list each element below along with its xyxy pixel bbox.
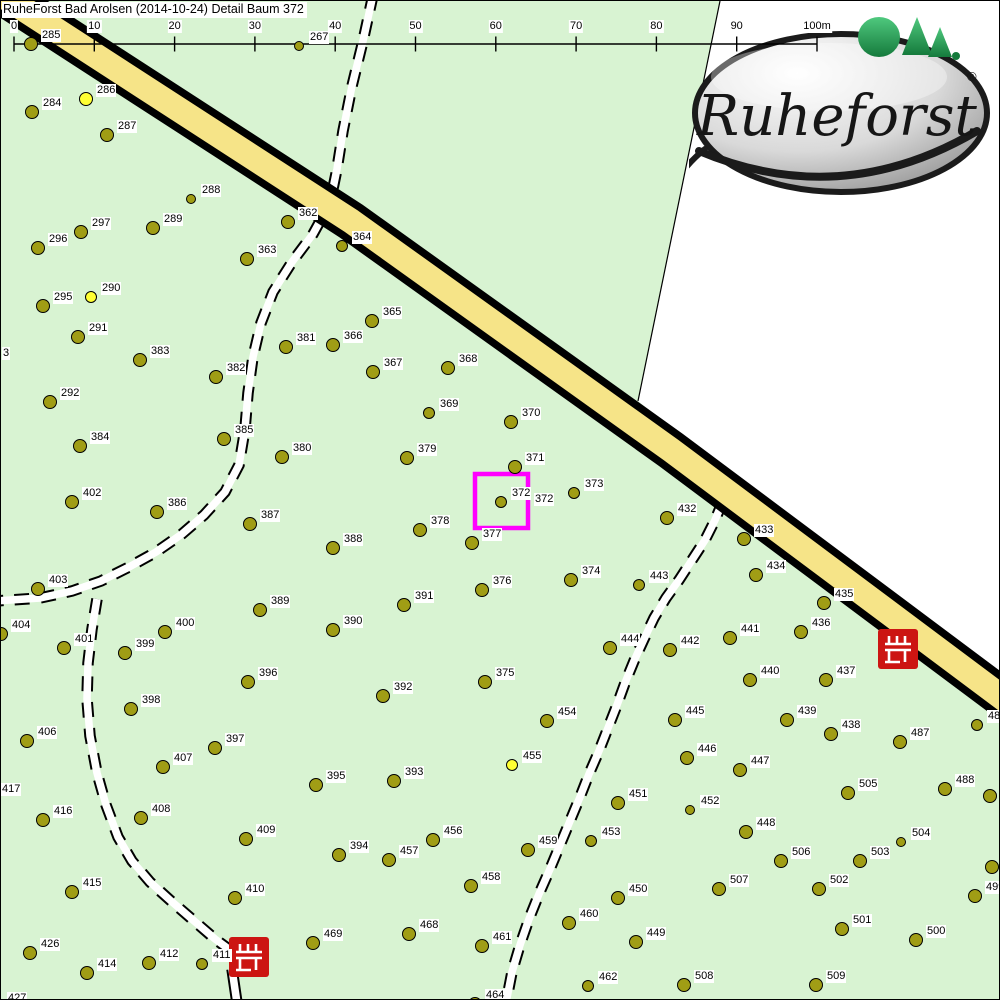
- tree-marker-285: [24, 37, 38, 51]
- tree-marker-462: [582, 980, 594, 992]
- tree-marker-438: [824, 727, 838, 741]
- scale-label: 100m: [802, 20, 832, 33]
- tree-label: 377: [482, 528, 502, 541]
- tree-marker-488: [938, 782, 952, 796]
- tree-label: 447: [750, 755, 770, 768]
- tree-marker-400: [158, 625, 172, 639]
- tree-label: 458: [481, 871, 501, 884]
- tree-label: 289: [163, 213, 183, 226]
- tree-label: 439: [797, 705, 817, 718]
- tree-label: 506: [791, 846, 811, 859]
- tree-label: 397: [225, 733, 245, 746]
- tree-label: 450: [628, 883, 648, 896]
- tree-marker-507: [712, 882, 726, 896]
- tree-marker-392: [376, 689, 390, 703]
- tree-label: 443: [649, 570, 669, 583]
- tree-marker-288: [186, 194, 196, 204]
- tree-marker-448: [739, 825, 753, 839]
- tree-marker-384: [73, 439, 87, 453]
- tree-label: 449: [646, 927, 666, 940]
- tree-label: 502: [829, 874, 849, 887]
- tree-label: 385: [234, 424, 254, 437]
- scale-label: 30: [248, 20, 262, 33]
- tree-label: 401: [74, 633, 94, 646]
- tree-label: 503: [870, 846, 890, 859]
- tree-marker-469: [306, 936, 320, 950]
- tree-label: 412: [159, 948, 179, 961]
- tree-marker-444: [603, 641, 617, 655]
- tree-label: 286: [96, 84, 116, 97]
- tree-label: 438: [841, 719, 861, 732]
- tree-label: 403: [48, 574, 68, 587]
- tree-marker-378: [413, 523, 427, 537]
- tree-marker-284: [25, 105, 39, 119]
- tree-marker-368: [441, 361, 455, 375]
- scale-label: 10: [87, 20, 101, 33]
- tree-marker-499: [968, 889, 982, 903]
- tree-marker-372: [495, 496, 507, 508]
- tree-label: 454: [557, 706, 577, 719]
- tree-marker-441: [723, 631, 737, 645]
- scale-label: 20: [167, 20, 181, 33]
- tree-marker-454: [540, 714, 554, 728]
- tree-label: 509: [826, 970, 846, 983]
- tree-label: 427: [7, 992, 27, 1000]
- tree-label: 362: [298, 207, 318, 220]
- tree-marker-290: [85, 291, 97, 303]
- tree-marker-440: [743, 673, 757, 687]
- tree-label: 384: [90, 431, 110, 444]
- tree-label: 297: [91, 217, 111, 230]
- tree-label: 504: [911, 827, 931, 840]
- tree-marker-393: [387, 774, 401, 788]
- scale-label: 80: [649, 20, 663, 33]
- tree-marker-377: [465, 536, 479, 550]
- tree-label: 410: [245, 883, 265, 896]
- tree-marker-401: [57, 641, 71, 655]
- tree-label: 417: [1, 783, 21, 796]
- tree-marker-388: [326, 541, 340, 555]
- tree-label: 441: [740, 623, 760, 636]
- tree-label: 464: [485, 989, 505, 1000]
- tree-label: 501: [852, 914, 872, 927]
- tree-label: 426: [40, 938, 60, 951]
- tree-marker: [983, 789, 997, 803]
- tree-label: 365: [382, 306, 402, 319]
- tree-label: 432: [677, 503, 697, 516]
- tree-marker-370: [504, 415, 518, 429]
- tree-label: 386: [167, 497, 187, 510]
- tree-marker-389: [253, 603, 267, 617]
- tree-label: 366: [343, 330, 363, 343]
- tree-marker-506: [774, 854, 788, 868]
- tree-label: 437: [836, 665, 856, 678]
- tree-label: 378: [430, 515, 450, 528]
- tree-marker-369: [423, 407, 435, 419]
- tree-marker-398: [124, 702, 138, 716]
- tree-marker-461: [475, 939, 489, 953]
- tree-label: 292: [60, 387, 80, 400]
- tree-label: 291: [88, 322, 108, 335]
- tree-label: 444: [620, 633, 640, 646]
- tree-label: 408: [151, 803, 171, 816]
- tree-marker-371: [508, 460, 522, 474]
- tree-label: 433: [754, 524, 774, 537]
- tree-label: 393: [404, 766, 424, 779]
- tree-marker-426: [23, 946, 37, 960]
- tree-marker-451: [611, 796, 625, 810]
- tree-label: 508: [694, 970, 714, 983]
- tree-label: 457: [399, 845, 419, 858]
- tree-marker-433: [737, 532, 751, 546]
- tree-marker-397: [208, 741, 222, 755]
- tree-marker-367: [366, 365, 380, 379]
- tree-label: 369: [439, 398, 459, 411]
- tree-marker-445: [668, 713, 682, 727]
- tree-marker-435: [817, 596, 831, 610]
- tree-marker-503: [853, 854, 867, 868]
- tree-label: 371: [525, 452, 545, 465]
- tree-marker-504: [896, 837, 906, 847]
- tree-marker-295: [36, 299, 50, 313]
- tree-marker-508: [677, 978, 691, 992]
- tree-label: 372: [534, 493, 554, 506]
- tree-marker-415: [65, 885, 79, 899]
- tree-marker-291: [71, 330, 85, 344]
- tree-marker-394: [332, 848, 346, 862]
- tree-marker-286: [79, 92, 93, 106]
- tree-marker-407: [156, 760, 170, 774]
- tree-label: 459: [538, 835, 558, 848]
- tree-marker-442: [663, 643, 677, 657]
- tree-label: 367: [383, 357, 403, 370]
- tree-label: 382: [226, 362, 246, 375]
- tree-label: 414: [97, 958, 117, 971]
- tree-label: 462: [598, 971, 618, 984]
- tree-marker-379: [400, 451, 414, 465]
- tree-marker-411: [196, 958, 208, 970]
- tree-marker-414: [80, 966, 94, 980]
- tree-marker-383: [133, 353, 147, 367]
- tree-marker-434: [749, 568, 763, 582]
- tree-label: 487: [910, 727, 930, 740]
- tree-label: 394: [349, 840, 369, 853]
- tree-marker-509: [809, 978, 823, 992]
- tree-label: 411: [212, 949, 232, 962]
- tree-marker-412: [142, 956, 156, 970]
- tree-marker-505: [841, 786, 855, 800]
- tree-marker-391: [397, 598, 411, 612]
- tree-label: 285: [41, 29, 61, 42]
- tree-marker-297: [74, 225, 88, 239]
- tree-label: 446: [697, 743, 717, 756]
- tree-label: 451: [628, 788, 648, 801]
- tree-label: 370: [521, 407, 541, 420]
- tree-label: 460: [579, 908, 599, 921]
- tree-label: 368: [458, 353, 478, 366]
- tree-label: 395: [326, 770, 346, 783]
- tree-label: 381: [296, 332, 316, 345]
- tree-label: 442: [680, 635, 700, 648]
- tree-marker-390: [326, 623, 340, 637]
- tree-label: 296: [48, 233, 68, 246]
- tree-marker-487: [893, 735, 907, 749]
- tree-label: 499: [985, 881, 1000, 894]
- tree-label: 468: [419, 919, 439, 932]
- tree-marker-439: [780, 713, 794, 727]
- scale-label: 70: [569, 20, 583, 33]
- tree-label: 456: [443, 825, 463, 838]
- tree-marker-382: [209, 370, 223, 384]
- tree-marker-408: [134, 811, 148, 825]
- tree-label: 400: [175, 617, 195, 630]
- tree-marker: [985, 860, 999, 874]
- tree-marker-380: [275, 450, 289, 464]
- tree-marker-437: [819, 673, 833, 687]
- tree-marker-406: [20, 734, 34, 748]
- tree-marker-365: [365, 314, 379, 328]
- tree-marker-502: [812, 882, 826, 896]
- tree-label: 448: [756, 817, 776, 830]
- tree-label: 461: [492, 931, 512, 944]
- tree-label: 374: [581, 565, 601, 578]
- tree-label: 288: [201, 184, 221, 197]
- tree-label: 486: [987, 710, 1000, 723]
- tree-marker-409: [239, 832, 253, 846]
- tree-marker-457: [382, 853, 396, 867]
- tree-label: 500: [926, 925, 946, 938]
- tree-label: 455: [522, 750, 542, 763]
- tree-marker-287: [100, 128, 114, 142]
- tree-label: 391: [414, 590, 434, 603]
- tree-label: 267: [309, 31, 329, 44]
- tree-label: 416: [53, 805, 73, 818]
- tree-label: 404: [11, 619, 31, 632]
- tree-label: 434: [766, 560, 786, 573]
- tree-label: 398: [141, 694, 161, 707]
- tree-label: 373: [584, 478, 604, 491]
- tree-label: 406: [37, 726, 57, 739]
- tree-label: 388: [343, 533, 363, 546]
- tree-marker-500: [909, 933, 923, 947]
- tree-label: 389: [270, 595, 290, 608]
- tree-marker-455: [506, 759, 518, 771]
- tree-label: 415: [82, 877, 102, 890]
- tree-label: 396: [258, 667, 278, 680]
- tree-label: 409: [256, 824, 276, 837]
- tree-label: 452: [700, 795, 720, 808]
- tree-marker-403: [31, 582, 45, 596]
- tree-label: 453: [601, 826, 621, 839]
- tree-marker-387: [243, 517, 257, 531]
- tree-marker-289: [146, 221, 160, 235]
- tree-marker-374: [564, 573, 578, 587]
- tree-marker-447: [733, 763, 747, 777]
- tree-marker-501: [835, 922, 849, 936]
- tree-marker-381: [279, 340, 293, 354]
- tree-marker-296: [31, 241, 45, 255]
- tree-label: 287: [117, 120, 137, 133]
- tree-marker-458: [464, 879, 478, 893]
- tree-label: 399: [135, 638, 155, 651]
- tree-marker-373: [568, 487, 580, 499]
- tree-label: 488: [955, 774, 975, 787]
- tree-marker-416: [36, 813, 50, 827]
- tree-label: 372: [511, 487, 531, 500]
- tree-marker-459: [521, 843, 535, 857]
- tree-marker-385: [217, 432, 231, 446]
- tree-marker-396: [241, 675, 255, 689]
- tree-label: 505: [858, 778, 878, 791]
- tree-marker-363: [240, 252, 254, 266]
- tree-marker-267: [294, 41, 304, 51]
- tree-label: 284: [42, 97, 62, 110]
- tree-label: 435: [834, 588, 854, 601]
- scale-label: 40: [328, 20, 342, 33]
- tree-marker-364: [336, 240, 348, 252]
- tree-label: 363: [257, 244, 277, 257]
- tree-label: 3: [2, 347, 10, 360]
- tree-marker-450: [611, 891, 625, 905]
- tree-label: 380: [292, 442, 312, 455]
- tree-marker-375: [478, 675, 492, 689]
- tree-marker-432: [660, 511, 674, 525]
- tree-label: 390: [343, 615, 363, 628]
- tree-label: 392: [393, 681, 413, 694]
- tree-label: 375: [495, 667, 515, 680]
- tree-marker-446: [680, 751, 694, 765]
- scale-label: 50: [408, 20, 422, 33]
- tree-label: 469: [323, 928, 343, 941]
- tree-label: 440: [760, 665, 780, 678]
- tree-label: 507: [729, 874, 749, 887]
- tree-label: 290: [101, 282, 121, 295]
- tree-label: 407: [173, 752, 193, 765]
- tree-label: 445: [685, 705, 705, 718]
- tree-marker-443: [633, 579, 645, 591]
- tree-label: 387: [260, 509, 280, 522]
- tree-label: 402: [82, 487, 102, 500]
- tree-label: 383: [150, 345, 170, 358]
- tree-label: 376: [492, 575, 512, 588]
- scale-label: 0: [10, 20, 18, 33]
- tree-marker-362: [281, 215, 295, 229]
- tree-marker-376: [475, 583, 489, 597]
- tree-marker-395: [309, 778, 323, 792]
- tree-marker-366: [326, 338, 340, 352]
- tree-marker-486: [971, 719, 983, 731]
- scale-label: 90: [730, 20, 744, 33]
- tree-label: 364: [352, 231, 372, 244]
- tree-marker-452: [685, 805, 695, 815]
- tree-marker-402: [65, 495, 79, 509]
- tree-label: 436: [811, 617, 831, 630]
- tree-marker-468: [402, 927, 416, 941]
- tree-marker-399: [118, 646, 132, 660]
- tree-label: 379: [417, 443, 437, 456]
- tree-marker-460: [562, 916, 576, 930]
- tree-label: 295: [53, 291, 73, 304]
- scale-label: 60: [489, 20, 503, 33]
- tree-marker-292: [43, 395, 57, 409]
- tree-marker-456: [426, 833, 440, 847]
- tree-marker-449: [629, 935, 643, 949]
- forest-map-canvas: Ruheforst ® RuheForst Bad Arolsen (2014-…: [0, 0, 1000, 1000]
- tree-marker-386: [150, 505, 164, 519]
- tree-marker-410: [228, 891, 242, 905]
- tree-marker-436: [794, 625, 808, 639]
- map-title: RuheForst Bad Arolsen (2014-10-24) Detai…: [2, 2, 307, 18]
- tree-marker-453: [585, 835, 597, 847]
